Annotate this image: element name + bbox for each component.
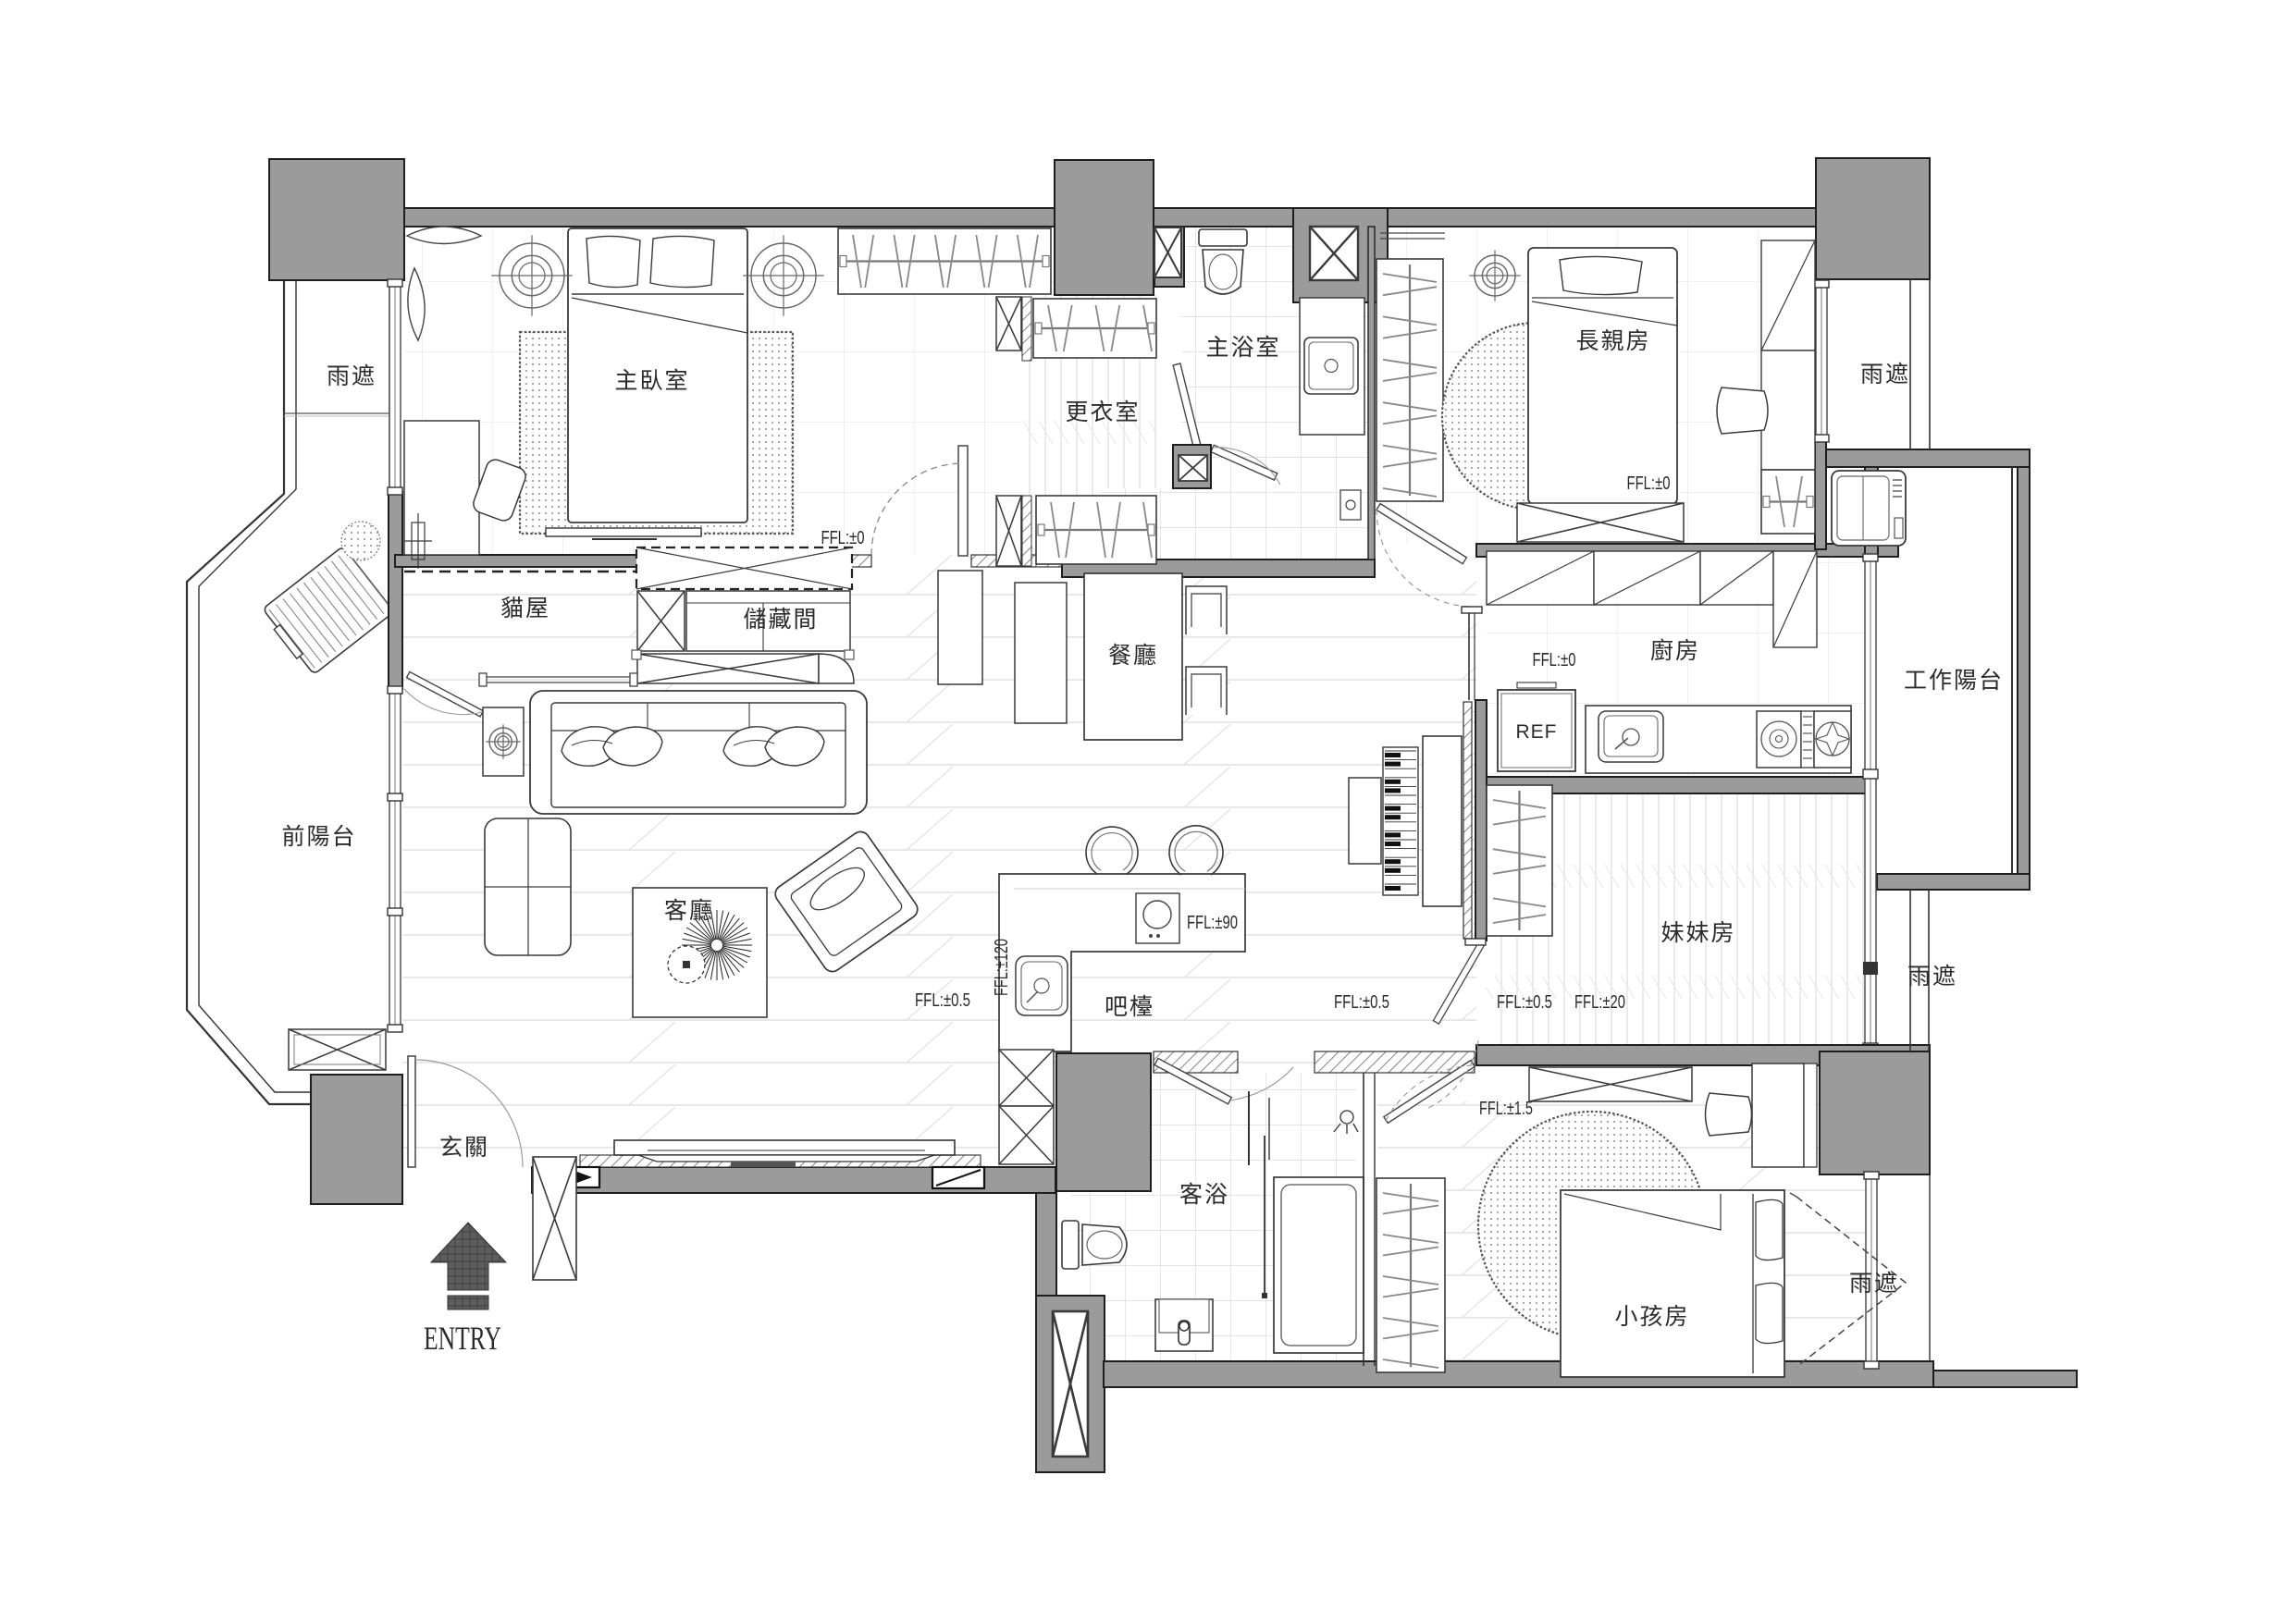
svg-text:小孩房: 小孩房: [1614, 1304, 1689, 1330]
svg-text:FFL:±90: FFL:±90: [1187, 913, 1238, 933]
svg-text:更衣室: 更衣室: [1065, 400, 1140, 425]
svg-text:雨遮: 雨遮: [1860, 362, 1910, 387]
svg-text:FFL:±120: FFL:±120: [992, 939, 1012, 996]
svg-text:FFL:±0: FFL:±0: [821, 528, 865, 548]
svg-text:ENTRY: ENTRY: [424, 1320, 501, 1357]
svg-text:REF: REF: [1516, 721, 1558, 743]
svg-text:主臥室: 主臥室: [614, 368, 689, 394]
svg-text:FFL:±0.5: FFL:±0.5: [915, 990, 970, 1011]
svg-text:FFL:±0.5: FFL:±0.5: [1497, 992, 1552, 1013]
svg-text:貓屋: 貓屋: [500, 596, 550, 621]
svg-text:雨遮: 雨遮: [327, 363, 376, 389]
svg-text:FFL:±1.5: FFL:±1.5: [1479, 1099, 1533, 1119]
svg-text:工作陽台: 工作陽台: [1904, 668, 2004, 694]
svg-text:餐廳: 餐廳: [1108, 643, 1158, 669]
svg-text:FFL:±20: FFL:±20: [1574, 992, 1625, 1013]
svg-text:FFL:±0.5: FFL:±0.5: [1334, 992, 1389, 1013]
svg-text:雨遮: 雨遮: [1907, 964, 1957, 990]
svg-text:FFL:±0: FFL:±0: [1627, 473, 1671, 494]
svg-text:儲藏間: 儲藏間: [743, 607, 818, 633]
svg-text:長親房: 長親房: [1575, 328, 1650, 354]
svg-text:妹妹房: 妹妹房: [1660, 920, 1735, 946]
svg-text:客浴: 客浴: [1179, 1182, 1229, 1208]
svg-text:玄關: 玄關: [439, 1135, 489, 1161]
svg-text:FFL:±0: FFL:±0: [1533, 650, 1576, 670]
svg-text:前陽台: 前陽台: [281, 824, 356, 850]
svg-text:雨遮: 雨遮: [1849, 1271, 1899, 1297]
svg-text:吧檯: 吧檯: [1105, 994, 1154, 1020]
svg-text:客廳: 客廳: [664, 898, 714, 924]
svg-text:廚房: 廚房: [1650, 638, 1700, 664]
svg-text:主浴室: 主浴室: [1205, 335, 1280, 361]
